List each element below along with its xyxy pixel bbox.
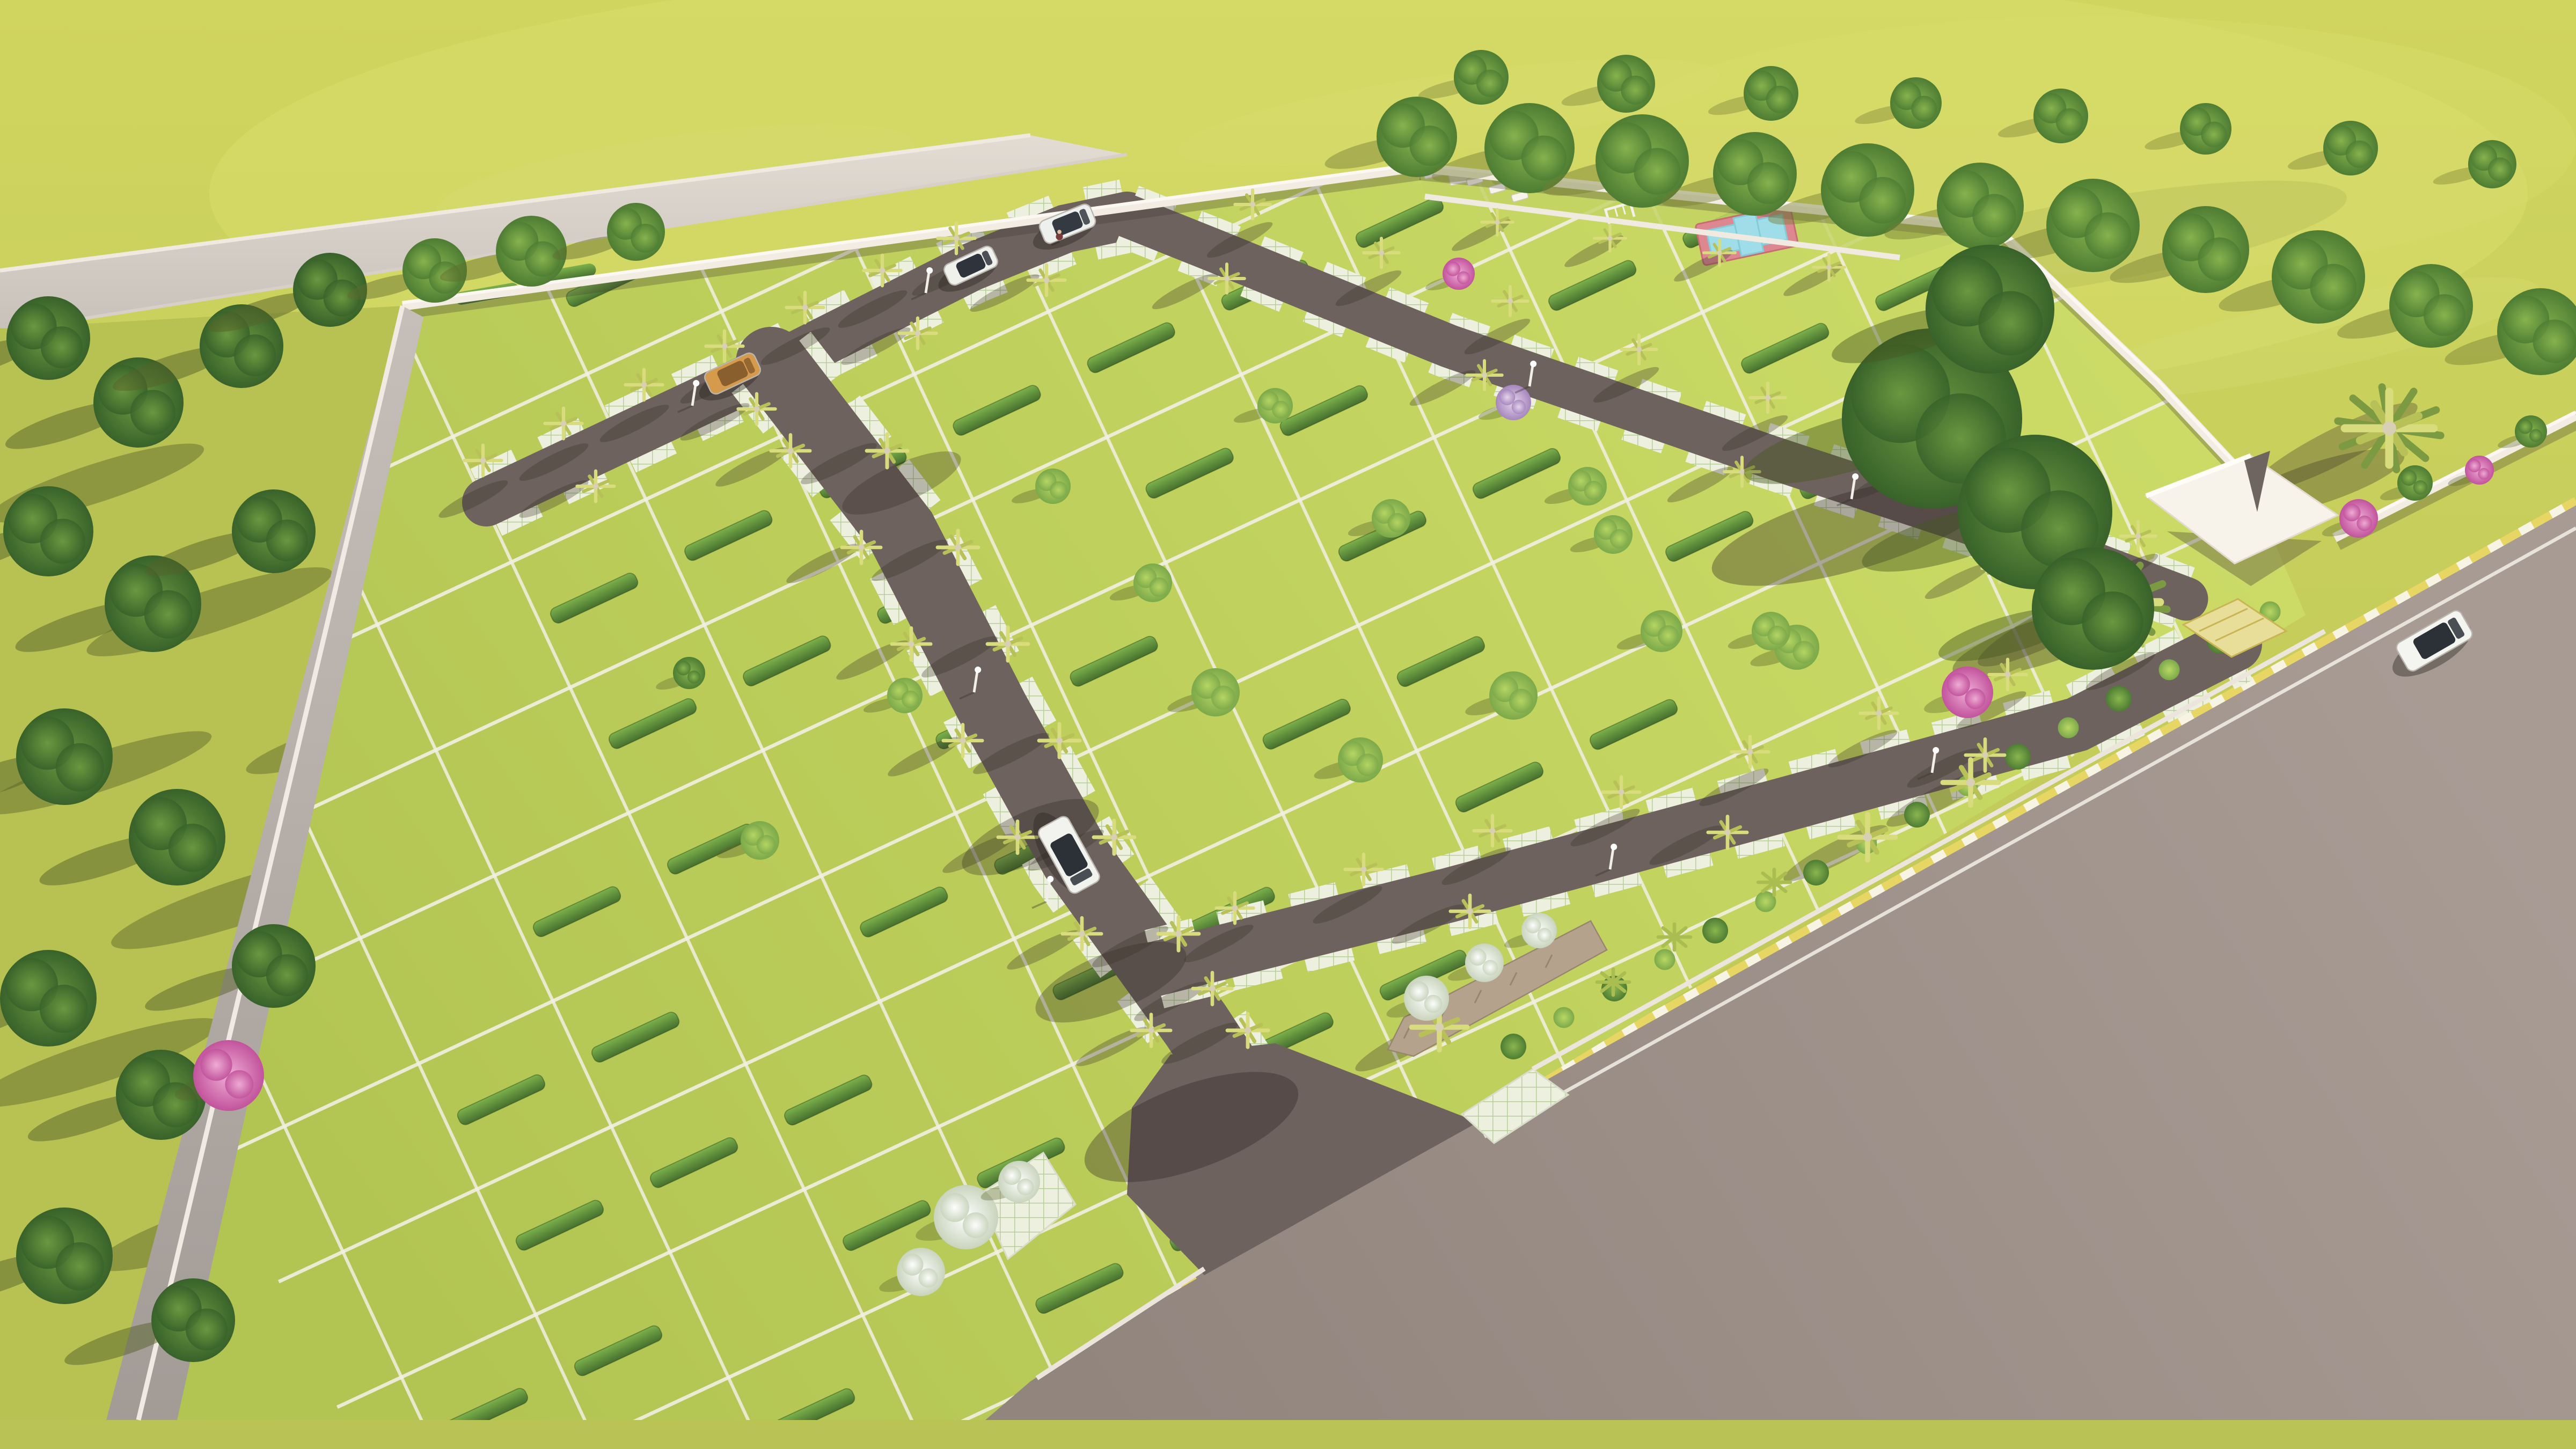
tree-light (1568, 467, 1607, 506)
tree-mid (2180, 103, 2231, 155)
tree-mid (1937, 163, 2024, 250)
street-lamp (1047, 876, 1053, 882)
tree-mid (2033, 89, 2088, 143)
flower-white (1404, 976, 1449, 1021)
tree-light (887, 678, 923, 713)
tree-dark (2032, 547, 2154, 670)
boundary-bush (2005, 744, 2031, 770)
boundary-bush (1655, 949, 1675, 970)
street-lamp (1852, 473, 1858, 480)
tree-mid (2162, 206, 2249, 293)
flower-green_bush (2397, 465, 2433, 501)
tree-mid (1890, 77, 1942, 129)
street-lamp (693, 380, 699, 386)
flower-white (1465, 943, 1504, 982)
tree-mid (2323, 121, 2378, 175)
boundary-bush (1554, 1007, 1575, 1028)
tree-light (741, 821, 779, 860)
boundary-bush (2058, 718, 2079, 738)
site-plan-3d-render (0, 0, 2576, 1449)
tree-mid (1744, 66, 1798, 121)
flower-pink (1942, 667, 1993, 718)
tree-dark (16, 1207, 113, 1304)
boundary-bush (1702, 918, 1728, 943)
tree-light (1133, 563, 1172, 602)
tree-mid (496, 216, 567, 287)
tree-light (1594, 515, 1633, 554)
street-lamp (1933, 747, 1939, 753)
tree-light (1191, 668, 1240, 716)
tree-dark (129, 789, 225, 885)
flower-pink_tree (193, 1040, 264, 1111)
boundary-bush (1803, 860, 1829, 885)
agave-plant (1597, 969, 1629, 995)
agave-plant (1758, 869, 1790, 895)
tree-light (1641, 610, 1682, 652)
street-lamp (975, 667, 981, 673)
flower-pink (2339, 499, 2378, 538)
tree-dark (232, 489, 316, 573)
aerial-site-render (0, 0, 2576, 1449)
street-lamp (1530, 361, 1536, 367)
boundary-bush (1501, 1034, 1526, 1059)
flower-white (998, 1161, 1040, 1203)
tree-mid (2272, 230, 2365, 324)
agave-plant (1658, 924, 1690, 950)
tree-dark (3, 486, 93, 576)
tree-dark (0, 950, 97, 1046)
flower-lavender (1496, 385, 1531, 420)
street-lamp (926, 267, 933, 274)
tree-light (1338, 737, 1383, 782)
boundary-bush (2106, 686, 2132, 712)
tree-dark (151, 1278, 235, 1362)
boundary-bush (2159, 660, 2180, 680)
person (1056, 233, 1063, 240)
flower-green_bush (2515, 415, 2547, 448)
tree-dark (1926, 245, 2054, 374)
flower-pink (1443, 258, 1475, 290)
tree-dark (6, 296, 90, 380)
tree-mid (1454, 50, 1509, 105)
tree-mid (2389, 264, 2473, 348)
flower-green_bush (673, 657, 705, 689)
tree-light (1257, 388, 1293, 423)
flower-pink (2465, 456, 2494, 485)
boundary-bush (1904, 802, 1930, 828)
tree-mid (1597, 55, 1655, 113)
tree-light (1035, 469, 1071, 504)
tree-mid (1713, 132, 1797, 216)
tree-light (1372, 499, 1410, 538)
tree-mid (2046, 179, 2140, 272)
tree-mid (2468, 140, 2516, 188)
street-lamp (1611, 844, 1617, 850)
tree-dark (16, 708, 113, 805)
tree-dark (232, 924, 316, 1008)
tree-mid (607, 203, 665, 261)
tree-light (1489, 671, 1538, 720)
flower-white (1521, 913, 1557, 948)
tree-light (1752, 612, 1790, 650)
flower-white (897, 1248, 945, 1296)
